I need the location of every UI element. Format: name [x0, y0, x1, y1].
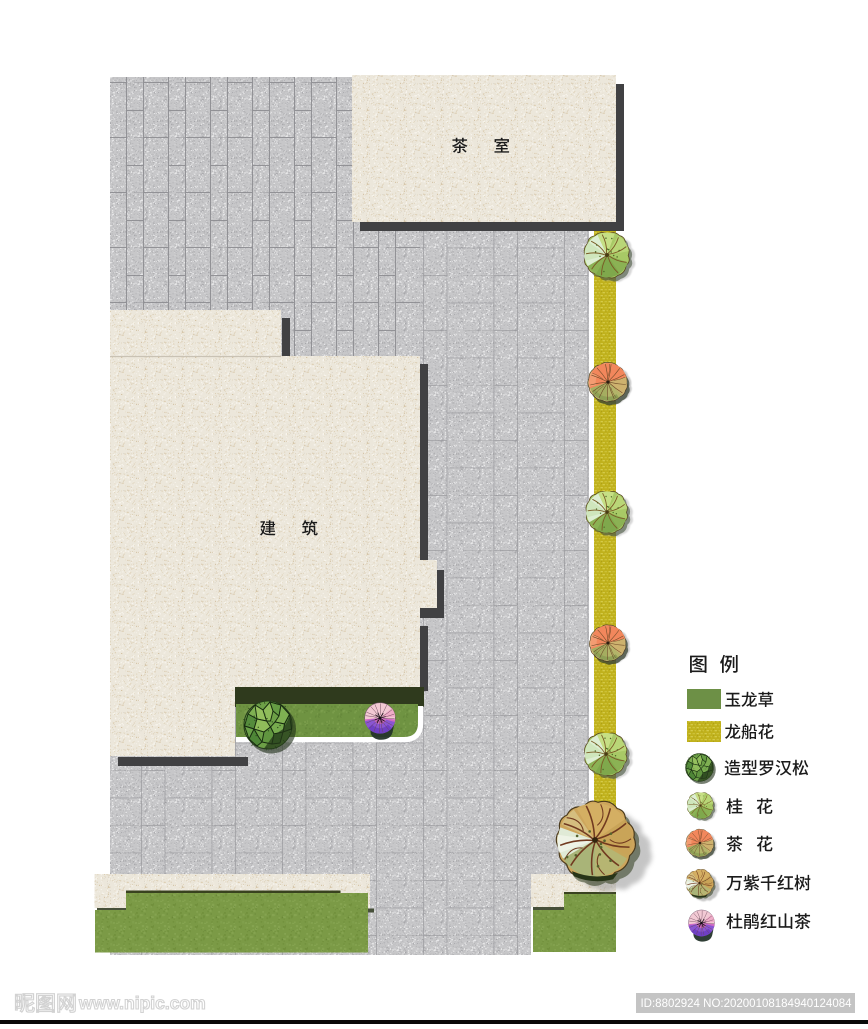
svg-text:ID:8802924 NO:2020010818494012: ID:8802924 NO:20200108184940124084: [640, 998, 852, 1010]
svg-text:www.nipic.com: www.nipic.com: [78, 993, 206, 1013]
